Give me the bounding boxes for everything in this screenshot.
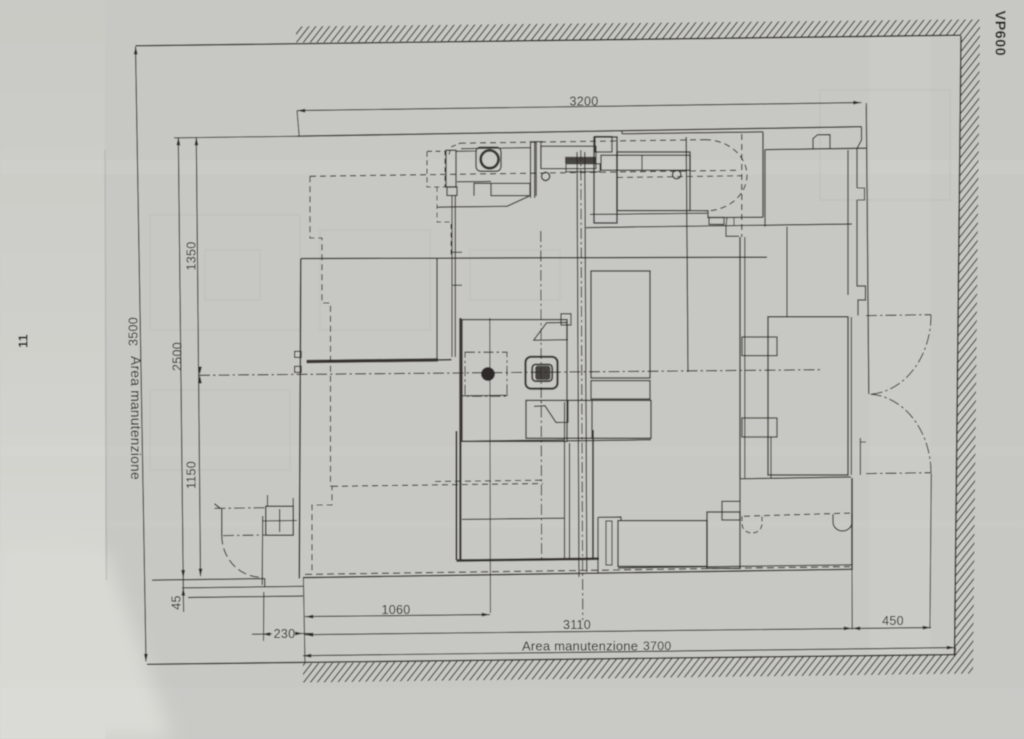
svg-text:3110: 3110 — [563, 618, 591, 632]
svg-text:1150: 1150 — [185, 461, 199, 489]
svg-text:230: 230 — [274, 627, 296, 641]
svg-text:3200: 3200 — [569, 95, 598, 109]
svg-text:1060: 1060 — [381, 603, 410, 617]
svg-text:VP600: VP600 — [992, 11, 1008, 57]
svg-text:1350: 1350 — [185, 241, 199, 270]
svg-text:450: 450 — [882, 614, 904, 628]
svg-text:2500: 2500 — [171, 342, 185, 371]
svg-text:Area manutenzione: Area manutenzione — [128, 356, 143, 480]
svg-text:45: 45 — [170, 595, 184, 610]
svg-text:Area manutenzione: Area manutenzione — [522, 639, 638, 654]
svg-text:3500: 3500 — [127, 317, 141, 346]
svg-text:11: 11 — [17, 334, 31, 348]
svg-text:3700: 3700 — [643, 639, 672, 653]
